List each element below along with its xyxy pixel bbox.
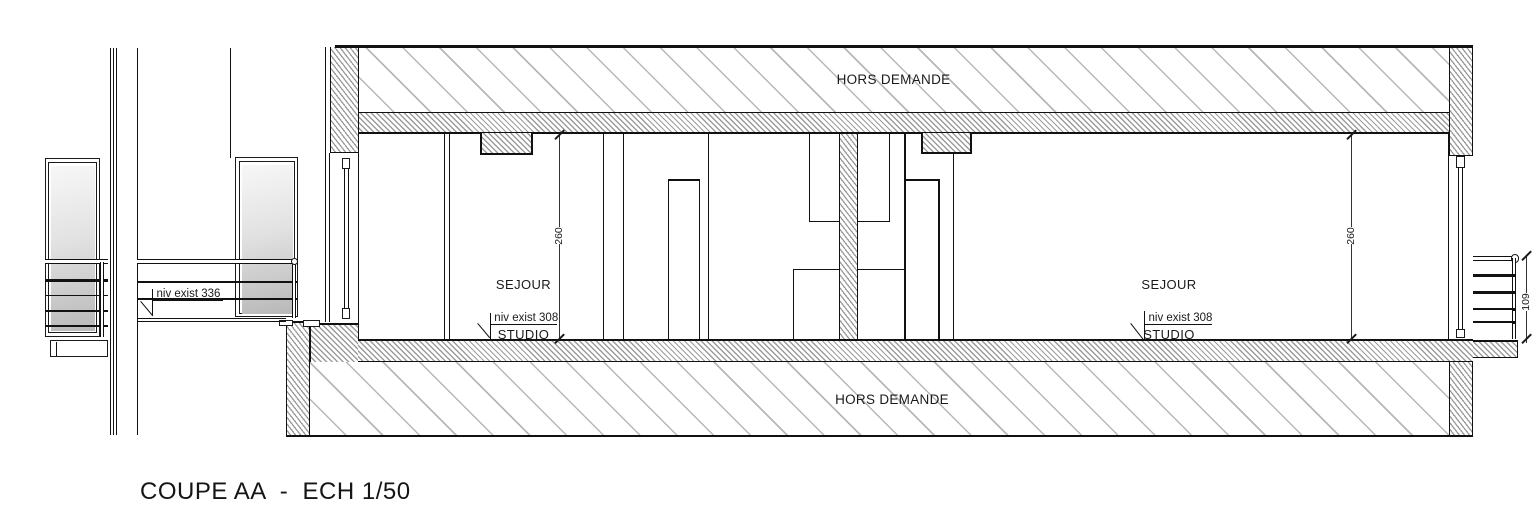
glazed-door-middle-glass	[242, 165, 294, 314]
wall-left-outer-line-1	[325, 47, 326, 322]
pier-under-balcony	[286, 321, 310, 436]
railing3-post	[1512, 258, 1516, 339]
room2-partition-under-beam	[953, 153, 954, 338]
railing3-node-2	[1512, 291, 1516, 295]
existing-wall-line-3	[116, 48, 117, 435]
railing3-rail-5	[1473, 321, 1514, 323]
hors-demande-bottom-label: HORS DEMANDE	[791, 392, 994, 407]
window-left-sill	[342, 308, 350, 319]
hors-demande-top-label: HORS DEMANDE	[792, 72, 995, 87]
existing-wall-line-2	[113, 48, 114, 435]
railing1-rail-4	[45, 310, 108, 312]
room1-door-head	[668, 179, 700, 180]
room1-door-jamb-left	[668, 179, 669, 338]
room2-dim-line-lower	[1351, 244, 1352, 340]
room2-name-line2: STUDIO	[1108, 327, 1231, 344]
room1-upper-cabinet-bottom	[809, 221, 839, 222]
room1-upper-cabinet-side	[809, 134, 810, 222]
wall-left-top	[330, 47, 358, 154]
room2-door-jamb	[938, 179, 939, 338]
room2-partition-a	[904, 134, 906, 338]
railing3-rail-3	[1473, 291, 1514, 293]
railing1-rail-3	[45, 295, 108, 296]
railing2-handrail	[137, 259, 297, 264]
wall-right-bottom	[1449, 362, 1473, 436]
level336-tick	[152, 289, 153, 315]
room1-door-jamb-right	[699, 179, 700, 338]
railing3-node-4	[1512, 321, 1516, 325]
level336-underline	[152, 300, 223, 301]
drawing-title: COUPE AA - ECH 1/50	[140, 478, 411, 506]
room2-lower-cabinet-top	[858, 269, 904, 270]
room2-height-dim: 260	[1345, 219, 1357, 253]
wall-left-outer-line-2	[329, 153, 330, 322]
room2-dim-line-upper	[1351, 135, 1352, 227]
room1-name: SEJOUR STUDIO	[462, 244, 585, 376]
room2-upper-cabinet-side	[889, 134, 890, 222]
room2-upper-cabinet-bottom	[858, 221, 890, 222]
railing1-rail-5	[45, 325, 108, 327]
railing3-node-1	[1512, 274, 1516, 278]
level336-label: niv exist 336	[157, 288, 221, 300]
room1-partition-c	[708, 134, 710, 338]
outline-bottom	[286, 435, 1473, 437]
door-left-sill-divider	[56, 342, 57, 356]
railing3-handrail	[1473, 256, 1515, 261]
room2-name-line1: SEJOUR	[1108, 277, 1231, 294]
room2-right-wall-face	[1448, 134, 1449, 338]
section-drawing-sheet: niv exist 336 260 niv exist 308 SEJOUR S…	[0, 0, 1538, 522]
railing1-handrail	[45, 259, 108, 264]
existing-wall-line-1	[110, 48, 111, 435]
ceiling-slab-band	[358, 112, 1449, 134]
wall-between-studios	[839, 134, 858, 338]
room1-lower-cabinet-top	[793, 269, 839, 270]
window-left-glazing	[344, 168, 349, 308]
room1-dim-line-upper	[559, 135, 560, 227]
railing1-rail-2	[45, 279, 108, 281]
glazed-door-middle	[235, 157, 298, 317]
level336-diagonal	[140, 301, 153, 316]
room1-name-line2: STUDIO	[462, 327, 585, 344]
room2-name: SEJOUR STUDIO	[1108, 244, 1231, 376]
window-left-head	[342, 158, 350, 169]
railing3-rail-4	[1473, 308, 1514, 309]
railing-height-dim: 109	[1520, 287, 1532, 317]
balcony-floor	[137, 318, 287, 322]
existing-wall-line-4	[137, 48, 138, 435]
wall-right-top	[1449, 47, 1473, 157]
room1-name-line1: SEJOUR	[462, 277, 585, 294]
railing3-node-3	[1512, 308, 1516, 312]
window-right-sill	[1456, 329, 1465, 338]
floor-slab-left-step	[310, 323, 357, 362]
room1-lower-cabinet-side	[793, 269, 794, 339]
existing-wall-line-5	[230, 48, 231, 157]
threshold-curb	[303, 320, 320, 327]
window-right-glazing	[1458, 168, 1463, 330]
room1-left-wall-face	[358, 47, 359, 339]
roof-outline-top	[335, 45, 1473, 47]
ceiling-beam-room2	[921, 133, 972, 154]
glazed-door-left-glass	[51, 166, 95, 331]
room2-door-head	[904, 179, 939, 180]
room1-partition-a-line1	[444, 134, 445, 338]
railing1-post	[100, 262, 104, 337]
ceiling-beam-room1	[480, 133, 533, 155]
window-right-head	[1456, 156, 1465, 168]
railing3-rail-2	[1473, 274, 1514, 276]
door-left-sill	[50, 340, 108, 357]
room1-partition-a-line2	[449, 134, 450, 338]
railing2-post	[292, 263, 296, 319]
room1-partition-b-line2	[623, 134, 624, 338]
room1-partition-b-line1	[603, 134, 604, 338]
floor-slab-balcony-right	[1473, 340, 1519, 359]
railing2-rail-2	[137, 281, 297, 283]
